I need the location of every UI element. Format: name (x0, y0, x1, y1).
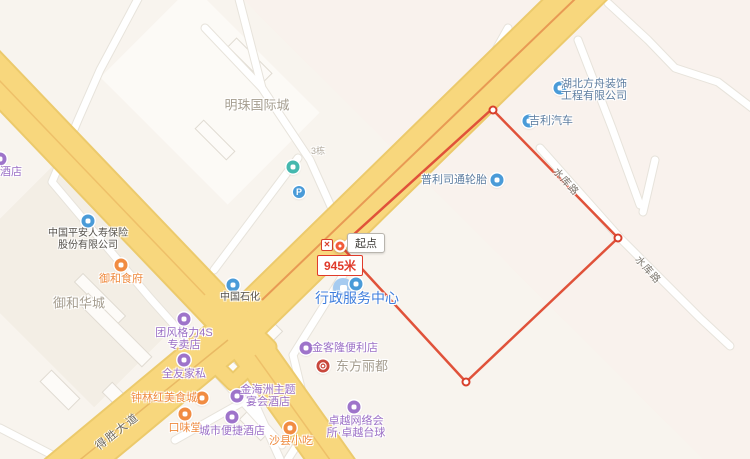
poi-shaxian-snacks-icon[interactable] (284, 422, 297, 435)
poi-hotel-partial-icon[interactable] (0, 153, 7, 166)
poi-mingzhu-international-city-label[interactable]: 明珠国际城 (224, 98, 289, 113)
poi-quanyou-furniture-label[interactable]: 全友家私 (162, 368, 206, 380)
poi-zhonglinhong-food-city-icon[interactable] (196, 392, 209, 405)
poi-yuhe-restaurant-label[interactable]: 御和食府 (99, 273, 143, 285)
poi-hotel-partial-label[interactable]: 酒店 (0, 166, 22, 178)
poi-quanyou-furniture-icon[interactable] (178, 354, 191, 367)
poi-city-comfort-inn-label[interactable]: 城市便捷酒店 (199, 425, 265, 437)
poi-bridgestone-tires-label[interactable]: 普利司通轮胎 (421, 174, 487, 186)
poi-bridgestone-tires-icon[interactable] (491, 174, 504, 187)
poi-jinkelong-store-label[interactable]: 金客隆便利店 (312, 342, 378, 354)
poi-kouweitang-label[interactable]: 口味堂 (169, 422, 202, 434)
poi-geely-auto-label[interactable]: 吉利汽车 (529, 115, 573, 127)
poi-shaxian-snacks-label[interactable]: 沙县小吃 (269, 435, 313, 447)
poi-dongfang-lidu-label[interactable]: 东方丽都 (336, 359, 388, 374)
poi-gree-4s-store-icon[interactable] (178, 313, 191, 326)
poi-zhuoyue-internet-billiards-icon[interactable] (348, 401, 361, 414)
road-label-desheng-avenue: 得胜大道 (92, 409, 143, 454)
road-label-shuiku-road-1: 水库路 (550, 164, 583, 199)
poi-hubei-fangzhou-decoration-label[interactable]: 湖北方舟装饰工程有限公司 (561, 78, 627, 102)
poi-city-comfort-inn-icon[interactable] (226, 411, 239, 424)
poi-zhuoyue-internet-billiards-label[interactable]: 卓越网络会所·卓越台球 (327, 415, 386, 439)
map-canvas[interactable]: ✕ 起点 945米 酒店明珠国际城3栋P普利司通轮胎湖北方舟装饰工程有限公司吉利… (0, 0, 750, 459)
poi-admin-service-center-label[interactable]: 行政服务中心 (315, 290, 399, 306)
poi-jinhaizhou-banquet-hotel-label[interactable]: 金海洲主题宴会酒店 (241, 384, 296, 408)
poi-sinopec-label[interactable]: 中国石化 (220, 292, 260, 304)
road-label-shuiku-road-2: 水库路 (632, 252, 665, 287)
poi-admin-service-center-alt-icon[interactable] (350, 278, 363, 291)
poi-parking-icon[interactable]: P (293, 186, 305, 198)
poi-zhonglinhong-food-city-label[interactable]: 钟林红美食城 (131, 392, 197, 404)
poi-yuhe-huacheng-label[interactable]: 御和华城 (53, 296, 105, 311)
poi-sinopec-icon[interactable] (227, 279, 240, 292)
poi-pingan-insurance-label[interactable]: 中国平安人寿保险股份有限公司 (48, 228, 128, 252)
poi-gree-4s-store-label[interactable]: 团风格力4S专卖店 (155, 327, 212, 351)
poi-jinkelong-store-icon[interactable] (300, 342, 313, 355)
poi-building-3-label[interactable]: 3栋 (311, 146, 325, 156)
poi-layer: 酒店明珠国际城3栋P普利司通轮胎湖北方舟装饰工程有限公司吉利汽车行政服务中心中国… (0, 0, 750, 459)
poi-kouweitang-icon[interactable] (179, 408, 192, 421)
poi-yuhe-restaurant-icon[interactable] (115, 259, 128, 272)
poi-unnamed-teal-icon[interactable] (287, 161, 300, 174)
poi-dongfang-lidu-icon[interactable] (317, 360, 330, 373)
poi-pingan-insurance-icon[interactable] (82, 215, 95, 228)
